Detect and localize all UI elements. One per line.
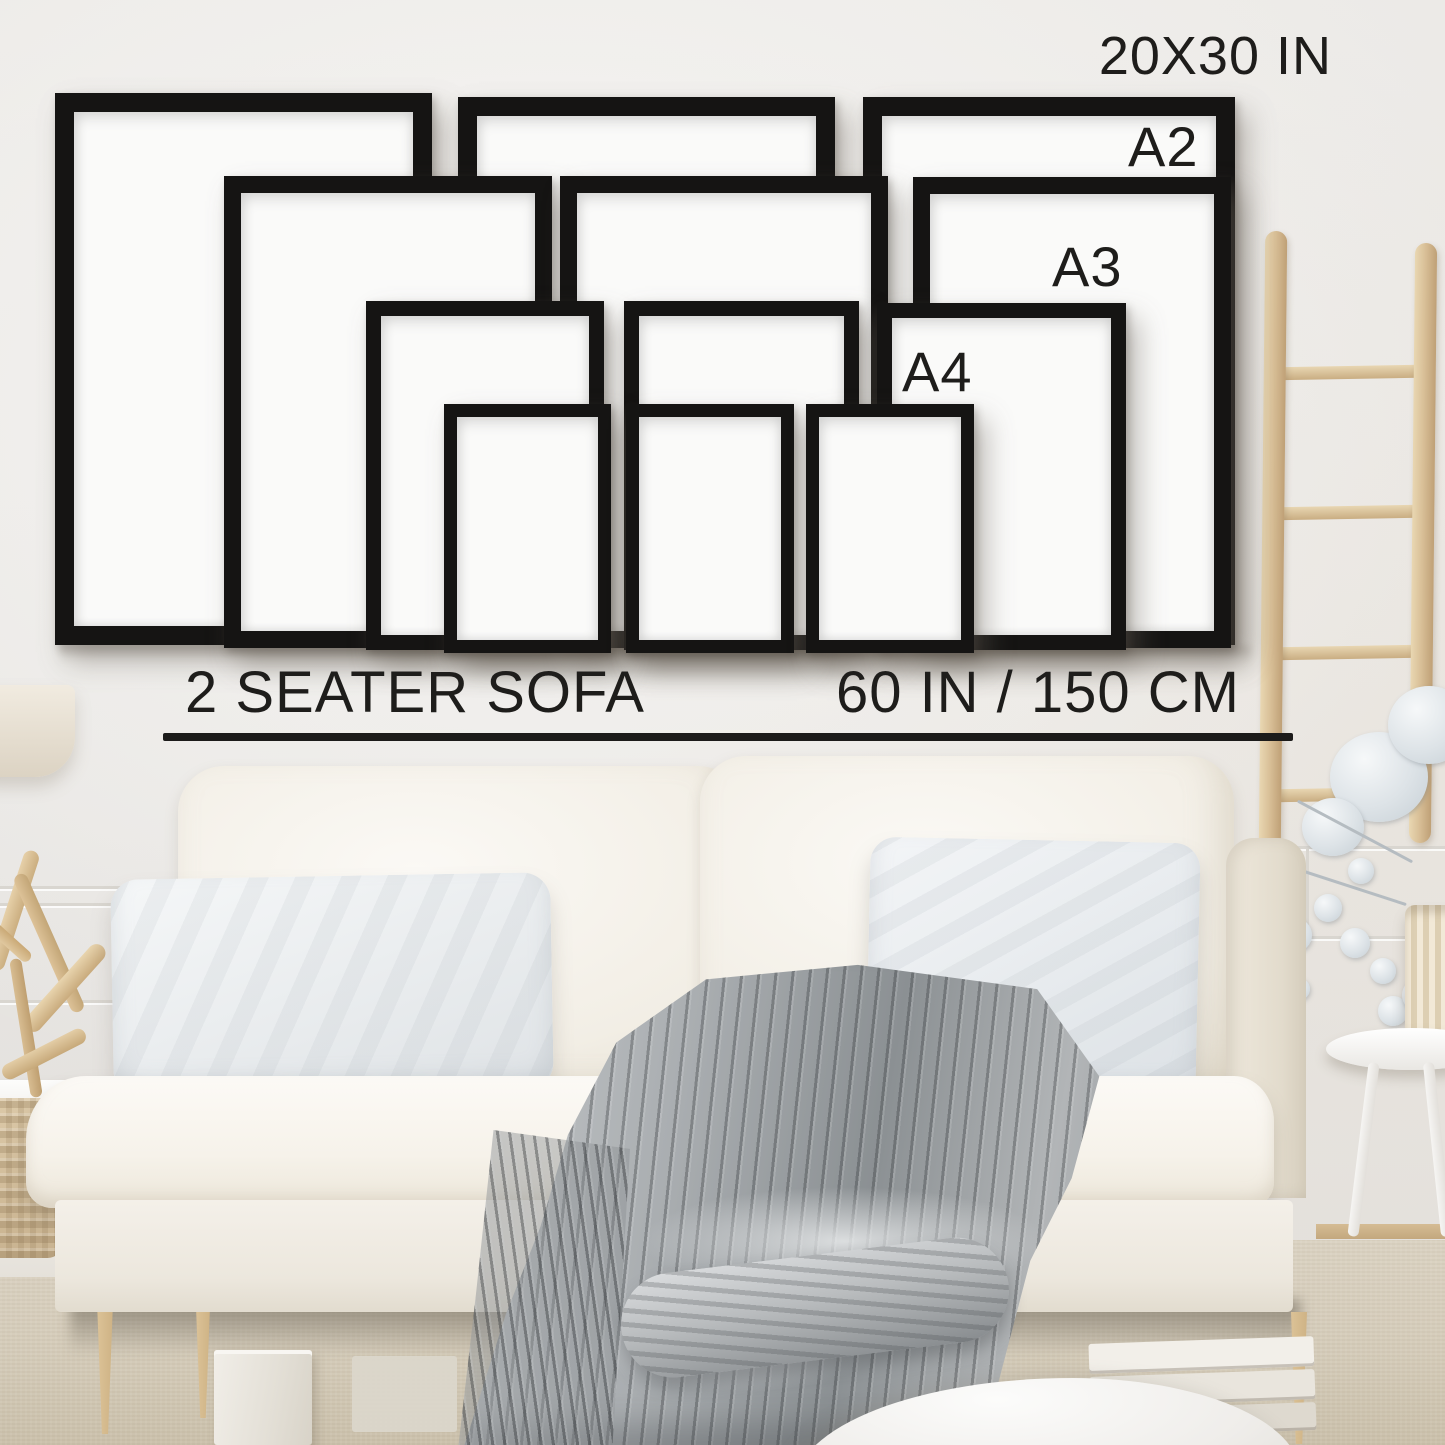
lumbar-pillow xyxy=(110,872,554,1098)
frame-a4-middle xyxy=(626,404,794,653)
ladder-rung xyxy=(1270,505,1425,521)
size-label-a3: A3 xyxy=(1052,239,1123,295)
size-label-a2: A2 xyxy=(1128,119,1199,175)
ladder-rung xyxy=(1270,365,1425,381)
fluted-vase xyxy=(1405,905,1445,1040)
size-label-20x30: 20X30 IN xyxy=(1099,29,1332,83)
frame-a4-left xyxy=(444,404,611,653)
size-label-a4: A4 xyxy=(902,344,973,400)
ladder-rung xyxy=(1270,645,1425,661)
sofa-width-caption: 60 IN / 150 CM xyxy=(836,664,1240,722)
size-guide-lifestyle-photo: 20X30 IN A2 A3 A4 2 SEATER SOFA 60 IN / … xyxy=(0,0,1445,1445)
frame-a4-right xyxy=(806,404,974,653)
storage-box-left-2 xyxy=(352,1356,457,1432)
sofa-caption: 2 SEATER SOFA xyxy=(185,664,645,722)
floor-trim-right xyxy=(1316,1224,1445,1239)
sofa-width-underline xyxy=(163,733,1293,741)
table-lamp xyxy=(0,685,75,777)
storage-box-left xyxy=(214,1350,312,1445)
